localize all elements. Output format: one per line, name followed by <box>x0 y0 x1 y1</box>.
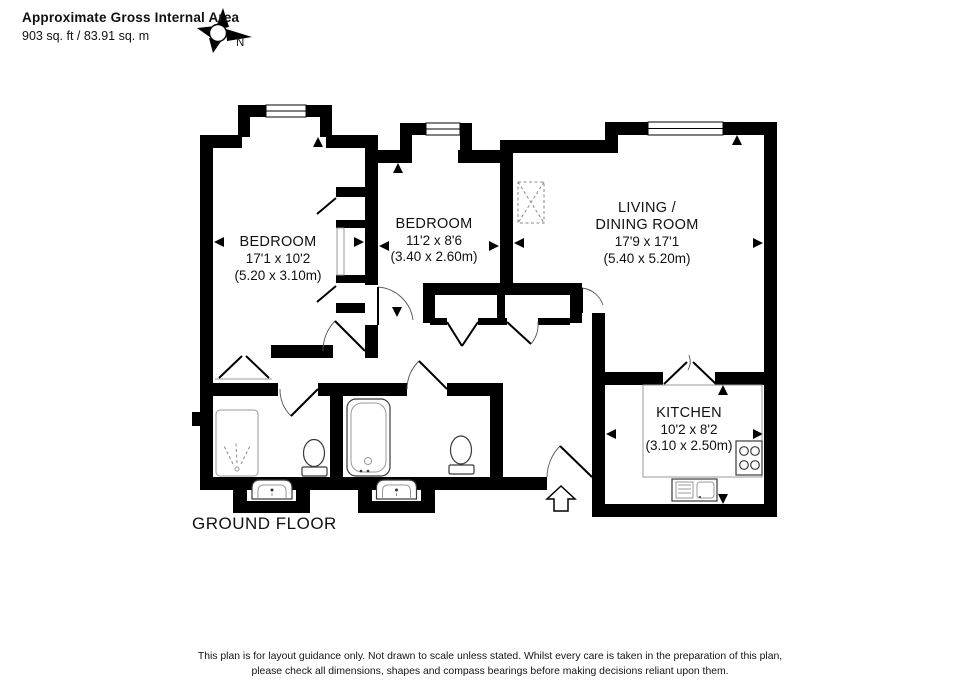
wash-basin <box>377 480 417 499</box>
entrance-door <box>547 446 592 477</box>
entrance-arrow-icon <box>547 486 575 511</box>
hall-cupboard-doors <box>447 322 538 346</box>
floor-label: GROUND FLOOR <box>192 514 337 534</box>
toilet <box>302 440 327 477</box>
living-room-door <box>582 288 603 313</box>
room-name: KITCHEN <box>656 405 722 421</box>
room-size-imperial: 11'2 x 8'6 <box>406 233 462 248</box>
hob <box>736 441 762 475</box>
page-title: Approximate Gross Internal Area <box>22 10 239 27</box>
room-name: BEDROOM <box>239 234 316 250</box>
shower <box>216 410 258 476</box>
kitchen-sink <box>672 479 717 501</box>
walls <box>192 105 777 517</box>
room-size-imperial: 17'1 x 10'2 <box>246 251 310 266</box>
room-size-metric: (5.20 x 3.10m) <box>234 268 321 283</box>
room-size-metric: (5.40 x 5.20m) <box>603 251 690 266</box>
room-size-imperial: 10'2 x 8'2 <box>661 422 718 437</box>
disclaimer: This plan is for layout guidance only. N… <box>0 649 980 679</box>
bathroom-door <box>407 361 447 389</box>
wash-basin <box>252 480 292 499</box>
disclaimer-line-2: please check all dimensions, shapes and … <box>0 664 980 679</box>
room-label-living-dining: LIVING / DINING ROOM 17'9 x 17'1 (5.40 x… <box>595 200 698 266</box>
header: Approximate Gross Internal Area 903 sq. … <box>22 10 239 45</box>
room-name-line-2: DINING ROOM <box>595 217 698 233</box>
room-name-line-1: LIVING / <box>618 200 677 216</box>
room-name: BEDROOM <box>395 216 472 232</box>
shower-room-door <box>280 389 318 416</box>
bedroom-2-bay-window <box>426 123 460 135</box>
gross-area-value: 903 sq. ft / 83.91 sq. m <box>22 29 239 45</box>
kitchen-double-doors <box>664 355 716 384</box>
bedroom-2-door <box>378 287 413 325</box>
room-label-bedroom-2: BEDROOM 11'2 x 8'6 (3.40 x 2.60m) <box>390 216 477 264</box>
bedroom-1-bay-window <box>266 105 306 117</box>
room-label-bedroom-1: BEDROOM 17'1 x 10'2 (5.20 x 3.10m) <box>234 234 321 283</box>
room-size-metric: (3.10 x 2.50m) <box>645 438 732 453</box>
disclaimer-line-1: This plan is for layout guidance only. N… <box>0 649 980 664</box>
floor-plan-page: Approximate Gross Internal Area 903 sq. … <box>0 0 980 692</box>
bath <box>347 399 390 476</box>
floor-plan-drawing: N <box>0 0 980 692</box>
room-size-metric: (3.40 x 2.60m) <box>390 249 477 264</box>
room-size-imperial: 17'9 x 17'1 <box>615 234 679 249</box>
living-room-window <box>648 122 723 135</box>
dashed-column-marker <box>518 182 544 223</box>
toilet <box>449 436 474 474</box>
room-label-kitchen: KITCHEN 10'2 x 8'2 (3.10 x 2.50m) <box>645 405 732 453</box>
